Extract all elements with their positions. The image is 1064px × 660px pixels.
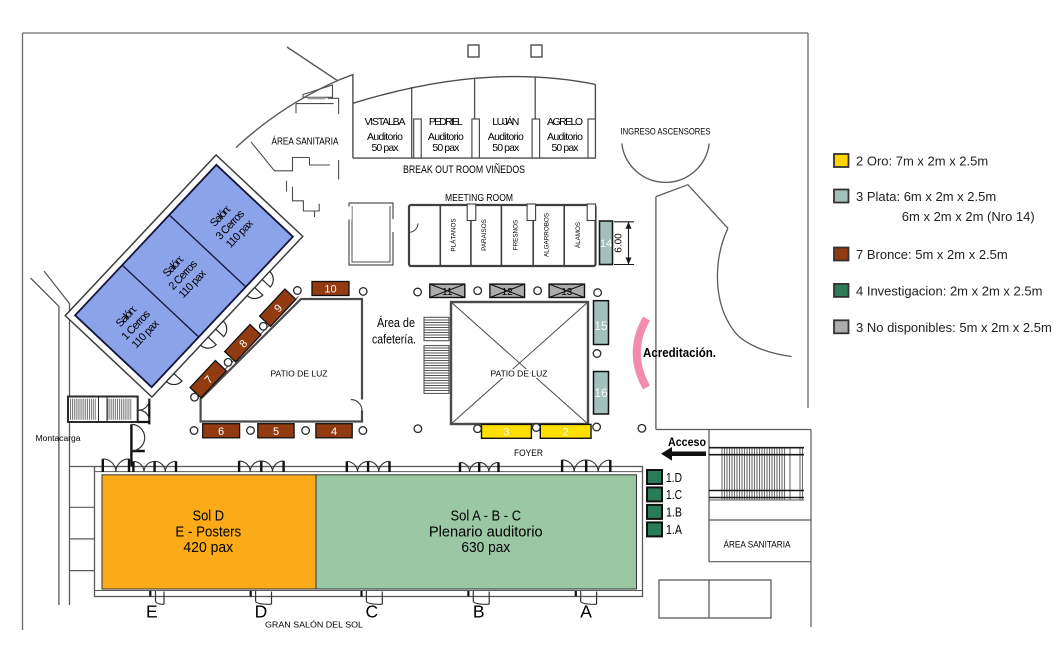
svg-text:Sol D: Sol D xyxy=(193,509,225,525)
svg-text:6.00: 6.00 xyxy=(614,233,625,253)
svg-text:PATIO DE LUZ: PATIO DE LUZ xyxy=(271,369,328,379)
svg-text:4: 4 xyxy=(331,426,337,438)
svg-text:50 pax: 50 pax xyxy=(492,142,520,154)
svg-text:630 pax: 630 pax xyxy=(461,540,511,556)
svg-text:E - Posters: E - Posters xyxy=(175,524,241,540)
svg-text:ÁREA SANITARIA: ÁREA SANITARIA xyxy=(272,135,339,148)
svg-text:B: B xyxy=(473,602,485,622)
svg-text:1.D: 1.D xyxy=(666,471,682,485)
svg-text:15: 15 xyxy=(594,319,608,333)
svg-text:INGRESO ASCENSORES: INGRESO ASCENSORES xyxy=(621,127,711,138)
svg-text:FOYER: FOYER xyxy=(514,448,543,459)
svg-text:5: 5 xyxy=(273,426,279,438)
svg-text:6: 6 xyxy=(218,426,224,438)
svg-text:ÁREA SANITARIA: ÁREA SANITARIA xyxy=(724,540,792,551)
svg-text:16: 16 xyxy=(594,386,608,400)
svg-text:7 Bronce: 5m x 2m x 2.5m: 7 Bronce: 5m x 2m x 2.5m xyxy=(856,247,1008,262)
svg-text:14: 14 xyxy=(600,238,612,250)
svg-text:3 Plata: 6m x 2m x 2.5m: 3 Plata: 6m x 2m x 2.5m xyxy=(856,189,996,204)
svg-text:AGRELO: AGRELO xyxy=(547,116,583,128)
svg-text:4 Investigacion: 2m x 2m x 2.5: 4 Investigacion: 2m x 2m x 2.5m xyxy=(856,283,1042,298)
svg-text:ALGARROBOS: ALGARROBOS xyxy=(544,213,551,257)
svg-text:50 pax: 50 pax xyxy=(552,142,580,154)
svg-text:PEDRIEL: PEDRIEL xyxy=(429,116,463,128)
svg-text:A: A xyxy=(580,602,592,622)
svg-text:2 Oro: 7m x 2m x 2.5m: 2 Oro: 7m x 2m x 2.5m xyxy=(856,154,988,169)
svg-text:10: 10 xyxy=(324,284,336,296)
svg-text:PATIO DE LUZ: PATIO DE LUZ xyxy=(491,369,548,379)
svg-text:420 pax: 420 pax xyxy=(183,540,234,556)
svg-text:Plenario auditorio: Plenario auditorio xyxy=(429,524,543,540)
svg-text:50 pax: 50 pax xyxy=(432,142,460,154)
svg-text:C: C xyxy=(365,602,378,622)
svg-text:Sol A - B - C: Sol A - B - C xyxy=(451,509,522,525)
svg-text:PARAISOS: PARAISOS xyxy=(481,219,488,251)
svg-text:D: D xyxy=(255,602,268,622)
svg-text:MEETING ROOM: MEETING ROOM xyxy=(445,193,513,204)
svg-text:6m x 2m x 2m (Nro 14): 6m x 2m x 2m (Nro 14) xyxy=(902,209,1035,224)
svg-text:ÁLAMOS: ÁLAMOS xyxy=(573,222,582,248)
svg-text:Acceso: Acceso xyxy=(668,435,706,449)
svg-text:1.C: 1.C xyxy=(666,488,682,502)
svg-text:BREAK OUT ROOM VIÑEDOS: BREAK OUT ROOM VIÑEDOS xyxy=(403,163,525,176)
svg-text:Montacarga: Montacarga xyxy=(36,434,82,443)
svg-text:3: 3 xyxy=(503,427,509,439)
svg-text:3 No disponibles: 5m x 2m x 2.: 3 No disponibles: 5m x 2m x 2.5m xyxy=(856,320,1052,335)
svg-text:1.A: 1.A xyxy=(666,523,683,537)
svg-text:E: E xyxy=(146,602,158,622)
svg-text:Acreditación.: Acreditación. xyxy=(643,346,716,360)
svg-text:cafetería.: cafetería. xyxy=(372,333,416,347)
svg-text:Área de: Área de xyxy=(377,315,415,330)
svg-text:1.B: 1.B xyxy=(666,506,682,520)
svg-text:2: 2 xyxy=(563,427,569,439)
svg-text:FRESNOS: FRESNOS xyxy=(512,220,519,250)
svg-text:LUJÁN: LUJÁN xyxy=(492,115,519,128)
svg-text:50 pax: 50 pax xyxy=(372,142,400,154)
svg-text:PLÁTANOS: PLÁTANOS xyxy=(449,218,458,251)
svg-text:VISTALBA: VISTALBA xyxy=(365,116,406,128)
svg-text:GRAN SALÓN DEL SOL: GRAN SALÓN DEL SOL xyxy=(265,620,363,630)
